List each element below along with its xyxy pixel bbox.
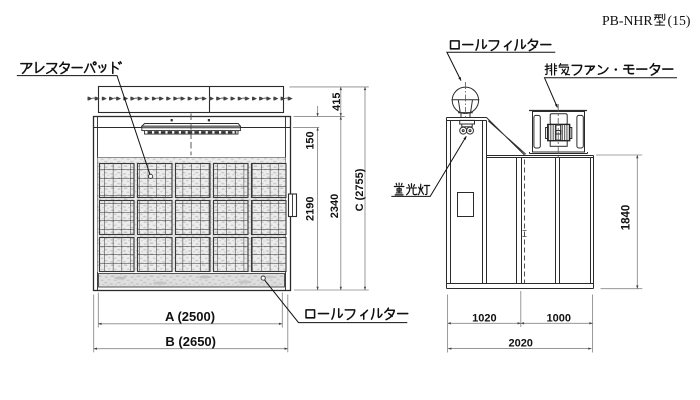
svg-text:2190: 2190 (305, 196, 317, 220)
svg-text:150: 150 (305, 131, 317, 149)
svg-text:1000: 1000 (547, 312, 571, 324)
svg-text:415: 415 (331, 93, 343, 111)
svg-text:2020: 2020 (508, 337, 532, 349)
svg-text:A (2500): A (2500) (165, 309, 215, 324)
svg-text:PB-NHR: PB-NHR (602, 13, 653, 28)
svg-text:(15): (15) (668, 13, 691, 29)
svg-text:1020: 1020 (472, 312, 496, 324)
svg-text:B (2650): B (2650) (165, 334, 216, 349)
svg-text:C (2755): C (2755) (354, 168, 366, 211)
svg-text:1840: 1840 (621, 205, 633, 231)
svg-text:2340: 2340 (329, 194, 341, 218)
